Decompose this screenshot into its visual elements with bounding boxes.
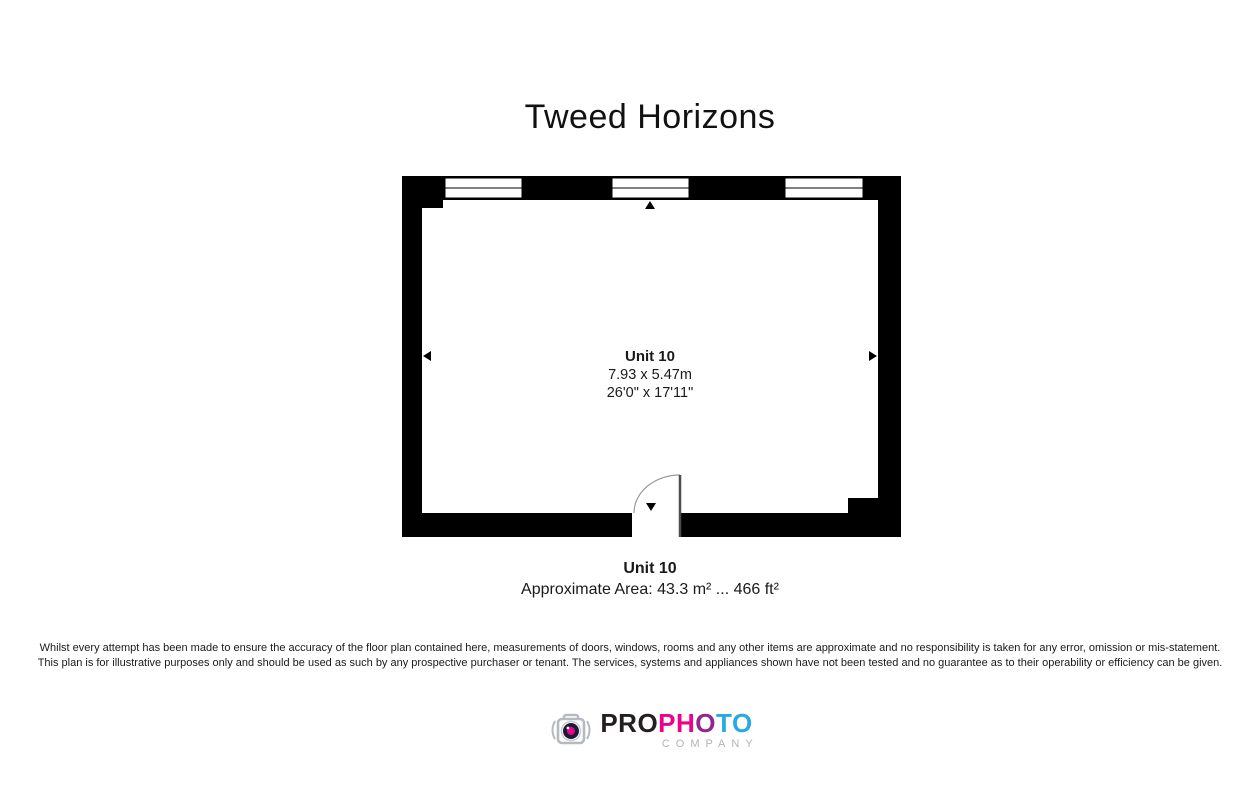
wall-bottom-right-segment xyxy=(680,513,901,537)
wall-left xyxy=(402,176,422,537)
summary-unit-name: Unit 10 xyxy=(20,559,1260,579)
window-1 xyxy=(445,178,522,198)
arrow-marker-left-icon xyxy=(423,351,431,361)
prophoto-logo: PROPHOTO COMPANY xyxy=(547,709,752,751)
disclaimer: Whilst every attempt has been made to en… xyxy=(0,641,1260,670)
brand-segment-pro: PRO xyxy=(600,708,658,738)
summary: Unit 10 Approximate Area: 43.3 m² ... 46… xyxy=(20,559,1260,600)
windows xyxy=(445,178,863,198)
window-3 xyxy=(785,178,863,198)
wall-right xyxy=(878,176,901,537)
arrow-marker-down-icon xyxy=(646,503,656,511)
room-dimensions-imperial: 26'0" x 17'11" xyxy=(607,385,694,401)
brand-subtitle: COMPANY xyxy=(600,738,758,750)
disclaimer-line-2: This plan is for illustrative purposes o… xyxy=(0,656,1260,671)
camera-icon xyxy=(547,709,595,751)
room-name: Unit 10 xyxy=(625,348,675,365)
room-dimensions-metric: 7.93 x 5.47m xyxy=(608,367,692,383)
disclaimer-line-1: Whilst every attempt has been made to en… xyxy=(0,641,1260,656)
door-swing-arc xyxy=(634,475,680,513)
camera-bracket-left xyxy=(553,721,556,739)
window-2 xyxy=(612,178,689,198)
wall-corner-block-top-left xyxy=(402,176,443,208)
door xyxy=(634,475,680,537)
camera-lens-highlight xyxy=(567,727,570,730)
summary-area-text: Approximate Area: 43.3 m² ... 466 ft² xyxy=(20,579,1260,600)
wall-step-bottom-right xyxy=(848,498,878,513)
brand-segment-to: TO xyxy=(716,708,753,738)
brand-name: PROPHOTO xyxy=(600,709,752,737)
floor-plan: Unit 10 7.93 x 5.47m 26'0" x 17'11" xyxy=(402,176,901,537)
page-title: Tweed Horizons xyxy=(20,98,1260,137)
brand-segment-o: O xyxy=(695,708,716,738)
arrow-marker-up-icon xyxy=(645,201,655,209)
camera-bracket-right xyxy=(587,721,590,739)
arrow-marker-right-icon xyxy=(869,351,877,361)
wall-bottom-left-segment xyxy=(402,513,632,537)
brand-segment-ph: PH xyxy=(658,708,695,738)
